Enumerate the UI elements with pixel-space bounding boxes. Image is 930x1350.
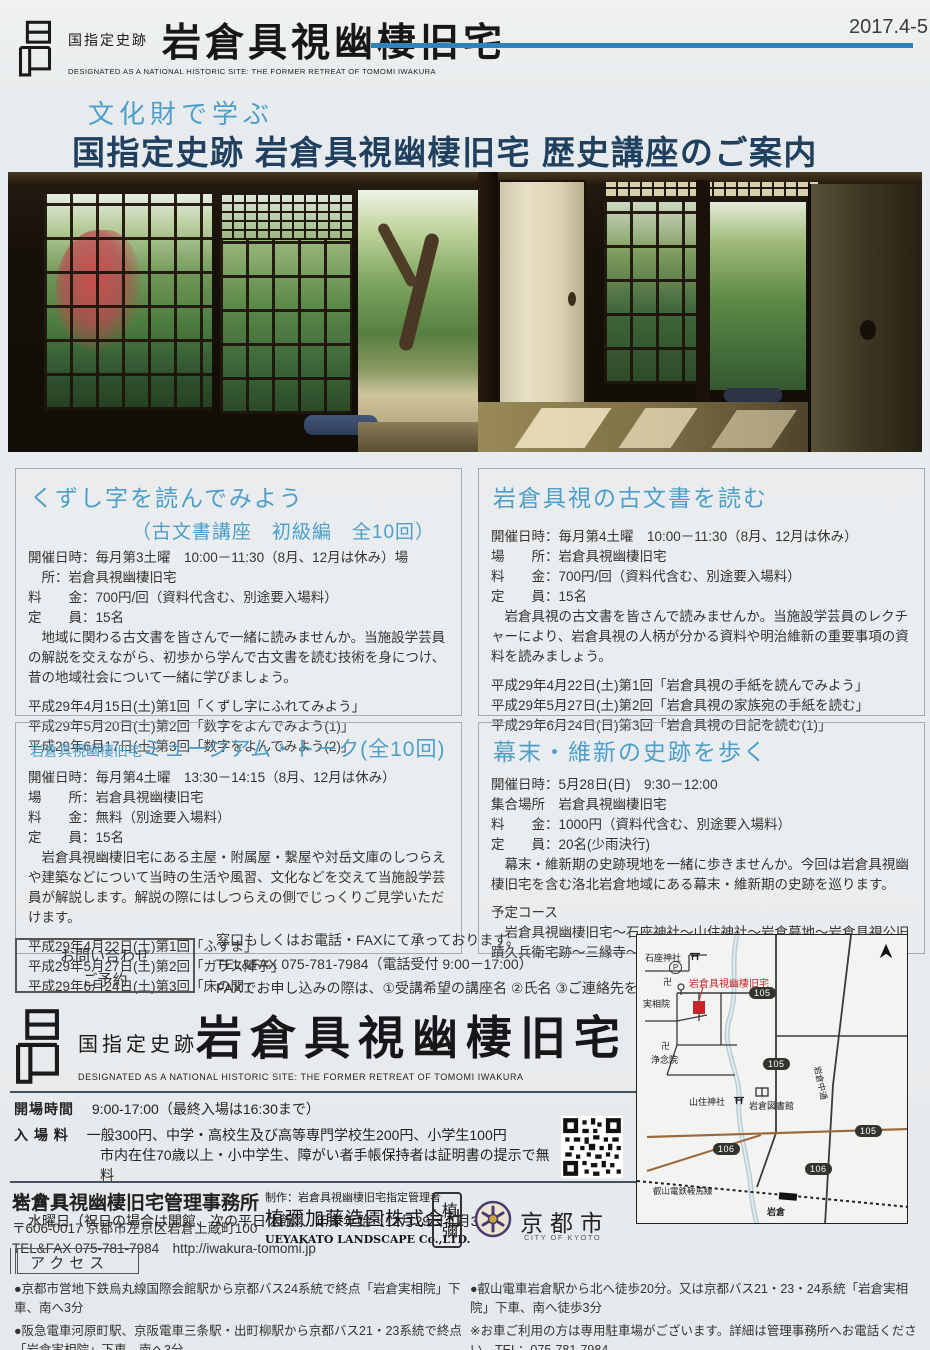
course3-info-2: 場 所：岩倉具視幽棲旧宅 [28, 788, 449, 808]
route-badge-105-b: 105 [763, 1058, 790, 1070]
access-note-parking: ※お車ご利用の方は専用駐車場がございます。詳細は管理事務所へお電話ください。TE… [470, 1322, 922, 1350]
header-site-label: 国指定史跡 [68, 30, 148, 50]
course1-subtitle: （古文書講座 初級編 全10回） [28, 517, 449, 544]
photo-shoji-right1 [604, 202, 696, 384]
course4-description: 幕末・維新期の史跡現地を一緒に歩きませんか。今回は岩倉具視幽棲旧宅を含む洛北岩倉… [491, 855, 912, 895]
divider-top [10, 1091, 650, 1093]
course1-info-4: 定 員：15名 [28, 608, 449, 628]
photo-cushion-dark [724, 388, 782, 402]
access-item-eizan: ●叡山電車岩倉駅から北へ徒歩20分。又は京都バス21・23・24系統「岩倉実相院… [470, 1280, 922, 1319]
contact-label-line1: お問い合わせ [17, 945, 193, 969]
course-box-museum-talk: 岩倉具視幽棲旧宅ミュージアム・トーク(全10回) 開催日時：毎月第4土曜 13:… [15, 722, 462, 954]
torii-icon [733, 1095, 745, 1105]
course1-info-3: 料 金：700円/回（資料代含む、別途要入場料） [28, 588, 449, 608]
map-roads [637, 935, 908, 1224]
north-arrow-icon [877, 943, 895, 961]
course1-info-2: 所：岩倉具視幽棲旧宅 [28, 568, 449, 588]
course4-title: 幕末・維新の史跡を歩く [493, 733, 912, 767]
library-icon [755, 1087, 769, 1097]
course4-info-1: 開催日時：5月28日(日) 9:30－12:00 [491, 775, 912, 795]
map-label-library: 岩倉図書館 [749, 1099, 794, 1112]
brand-site-name-en: DESIGNATED AS A NATIONAL HISTORIC SITE: … [78, 1072, 524, 1082]
course-box-komonjo: 岩倉具視の古文書を読む 開催日時：毎月第4土曜 10:00－11:30（8月、1… [478, 468, 925, 716]
course3-description: 岩倉具視幽棲旧宅にある主屋・附属屋・繋屋や対岳文庫のしつらえや建築などについて当… [28, 848, 449, 928]
brand-site-label: 国指定史跡 [78, 1028, 198, 1057]
course1-description: 地域に関わる古文書を皆さんで一緒に読みませんか。当施設学芸員の解説を交えながら、… [28, 628, 449, 688]
photo-transom-mid [220, 194, 352, 240]
map-label-yamazumi: 山住神社 [689, 1095, 725, 1108]
course3-info-4: 定 員：15名 [28, 828, 449, 848]
course2-info-1: 開催日時：毎月第4土曜 10:00－11:30（8月、12月は休み） [491, 527, 912, 547]
route-badge-106-b: 106 [805, 1163, 832, 1175]
course2-info-2: 場 所：岩倉具視幽棲旧宅 [491, 547, 912, 567]
issue-date: 2017.4-5 [849, 16, 928, 39]
course3-title: ミュージアム・トーク(全10回) [142, 738, 445, 761]
course-box-walk: 幕末・維新の史跡を歩く 開催日時：5月28日(日) 9:30－12:00 集合場… [478, 722, 925, 954]
map-label-railway: 叡山電鉄鞍馬線 [653, 1185, 713, 1197]
map-label-jonenin: 浄念院 [651, 1053, 678, 1066]
map-label-jonenin-manji: 卍 [661, 1039, 670, 1052]
course2-schedule-1: 平成29年4月22日(土)第1回「岩倉具視の手紙を読んでみよう」 [491, 676, 912, 696]
course2-info-4: 定 員：15名 [491, 587, 912, 607]
hours-value: 9:00-17:00（最終入場は16:30まで） [92, 1101, 320, 1117]
course4-course-heading: 予定コース [491, 903, 912, 923]
course3-info-3: 料 金：無料（別途要入場料） [28, 808, 449, 828]
office-name: 岩倉具視幽棲旧宅管理事務所 [12, 1188, 259, 1215]
course4-info-4: 定 員：20名(少雨決行) [491, 835, 912, 855]
contact-label-box: お問い合わせ ご予約 [15, 938, 195, 993]
divider-bottom [10, 1181, 650, 1183]
hours-label: 開場時間 [14, 1101, 74, 1117]
qr-code [561, 1116, 623, 1178]
course3-info-1: 開催日時：毎月第4土曜 13:30－14:15（8月、12月は休み） [28, 768, 449, 788]
map-label-jissoin: 実相院 [643, 997, 670, 1010]
course2-schedule-2: 平成29年5月27日(土)第2回「岩倉具視の家族宛の手紙を読む」 [491, 696, 912, 716]
course1-schedule-1: 平成29年4月15日(土)第1回「くずし字にふれてみよう」 [28, 697, 449, 717]
course4-info-3: 料 金：1000円（資料代含む、別途要入場料） [491, 815, 912, 835]
photo-shoji-mid [220, 240, 352, 414]
admission-label: 入 場 料 [14, 1127, 69, 1143]
map-label-jissoin-manji: 卍 [663, 975, 672, 988]
kyoto-city-emblem [474, 1200, 512, 1238]
flyer-page: 国指定史跡 岩倉具視幽棲旧宅 DESIGNATED AS A NATIONAL … [0, 0, 930, 1350]
access-item-hankyu: ●阪急電車河原町駅、京阪電車三条駅・出町柳駅から京都バス21・23系統で終点「岩… [14, 1322, 462, 1350]
access-double-bar [10, 1248, 16, 1274]
access-item-subway: ●京都市営地下鉄烏丸線国際会館駅から京都バス24系統で終点「岩倉実相院」下車、南… [14, 1280, 462, 1319]
header-site-name: 岩倉具視幽棲旧宅 [162, 12, 506, 68]
area-map: 石座神社 P 岩倉具視幽棲旧宅 卍 実相院 卍 浄念院 山住神社 岩倉図書館 岩… [636, 934, 908, 1224]
admission-value2: 市内在住70歳以上・小中学生、障がい者手帳保持者は証明書の提示で無料 [100, 1145, 559, 1185]
access-label-box: アクセス [17, 1248, 139, 1274]
course2-info-3: 料 金：700円/回（資料代含む、別途要入場料） [491, 567, 912, 587]
brand-site-name: 岩倉具視幽棲旧宅 [196, 1002, 628, 1068]
kyoto-city-en: CITY OF KYOTO [524, 1233, 601, 1242]
map-label-station: 岩倉 [767, 1205, 785, 1218]
producer-seal: 植彌 [432, 1192, 462, 1248]
course3-title-prefix: 岩倉具視幽棲旧宅 [30, 743, 142, 759]
course1-info-1: 開催日時：毎月第3土曜 10:00－11:30（8月、12月は休み）場 [28, 548, 449, 568]
producer-credit: 制作：岩倉具視幽棲旧宅指定管理者 [265, 1189, 441, 1205]
route-badge-106-a: 106 [713, 1143, 740, 1155]
course2-title: 岩倉具視の古文書を読む [493, 479, 912, 513]
photo-right-wall [808, 184, 922, 452]
page-title: 国指定史跡 岩倉具視幽棲旧宅 歴史講座のご案内 [72, 126, 818, 174]
admission-value: 一般300円、中学・高校生及び高等専門学校生200円、小学生100円 [87, 1127, 507, 1143]
site-logo-mark [14, 20, 56, 78]
course4-info-2: 集合場所 岩倉具視幽棲旧宅 [491, 795, 912, 815]
route-badge-105-a: 105 [749, 987, 776, 999]
photo-door-pull [860, 320, 876, 340]
header-accent-bar [371, 43, 913, 48]
hero-photo [8, 172, 922, 452]
course2-description: 岩倉具視の古文書を皆さんで読みませんか。当施設学芸員のレクチャーにより、岩倉具視… [491, 607, 912, 667]
torii-icon [689, 951, 701, 961]
route-badge-105-c: 105 [855, 1125, 882, 1137]
photo-garden-right2 [710, 202, 806, 390]
photo-ground-left [358, 422, 478, 452]
course1-title: くずし字を読んでみよう [30, 479, 449, 513]
map-label-parking: P [669, 961, 682, 974]
photo-frame-right [696, 180, 710, 420]
photo-transom2 [604, 182, 818, 198]
photo-fusuma-pull [568, 292, 576, 306]
office-address: 〒606-0017 京都市左京区岩倉上蔵町100 [12, 1217, 257, 1237]
contact-label-line2: ご予約 [17, 969, 193, 993]
brand-logo-mark [14, 1008, 61, 1086]
header-site-name-en: DESIGNATED AS A NATIONAL HISTORIC SITE: … [68, 67, 436, 76]
course-box-kuzushiji: くずし字を読んでみよう （古文書講座 初級編 全10回） 開催日時：毎月第3土曜… [15, 468, 462, 716]
photo-shoji-left [44, 194, 212, 410]
